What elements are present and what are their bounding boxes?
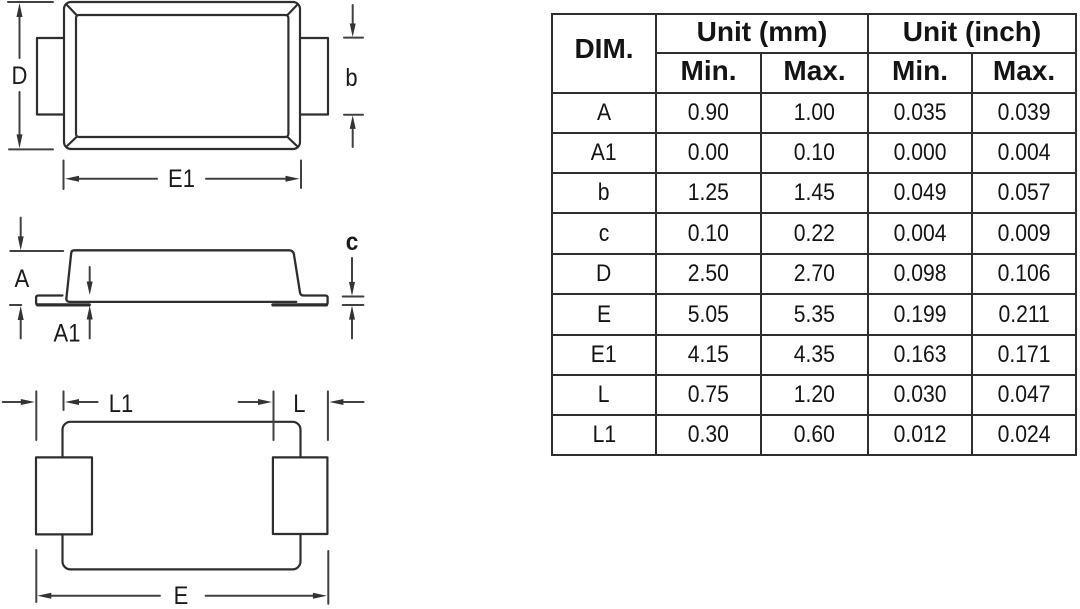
svg-text:E: E <box>174 582 189 609</box>
svg-text:A1: A1 <box>54 320 81 348</box>
svg-text:L: L <box>293 390 305 418</box>
svg-text:c: c <box>346 228 359 256</box>
svg-text:A: A <box>14 265 29 293</box>
svg-text:b: b <box>345 64 357 92</box>
svg-text:D: D <box>12 62 28 90</box>
svg-text:E1: E1 <box>168 165 195 193</box>
svg-text:L1: L1 <box>109 390 134 418</box>
